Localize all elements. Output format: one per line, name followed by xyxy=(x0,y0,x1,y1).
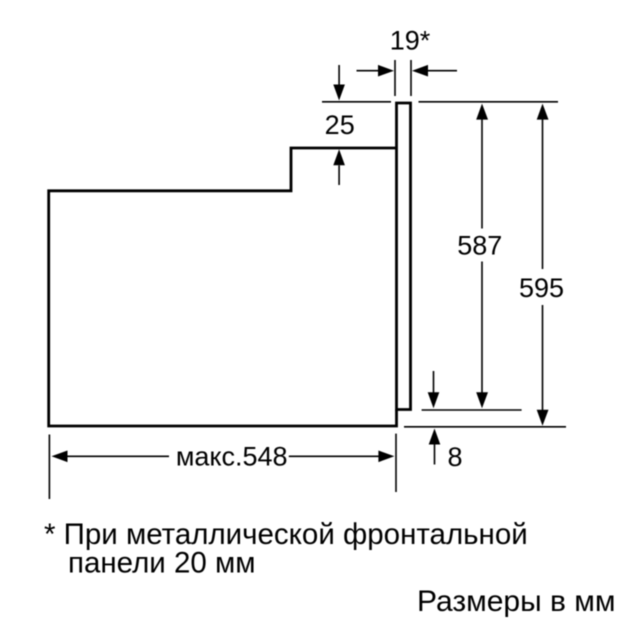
svg-text:587: 587 xyxy=(457,231,502,261)
svg-text:панели 20 мм: панели 20 мм xyxy=(68,547,256,580)
svg-text:8: 8 xyxy=(447,442,462,472)
svg-text:595: 595 xyxy=(519,273,564,303)
svg-text:19*: 19* xyxy=(390,26,431,56)
svg-text:макс.548: макс.548 xyxy=(176,442,288,472)
svg-text:25: 25 xyxy=(325,110,355,140)
svg-text:Размеры в мм: Размеры в мм xyxy=(417,585,616,618)
